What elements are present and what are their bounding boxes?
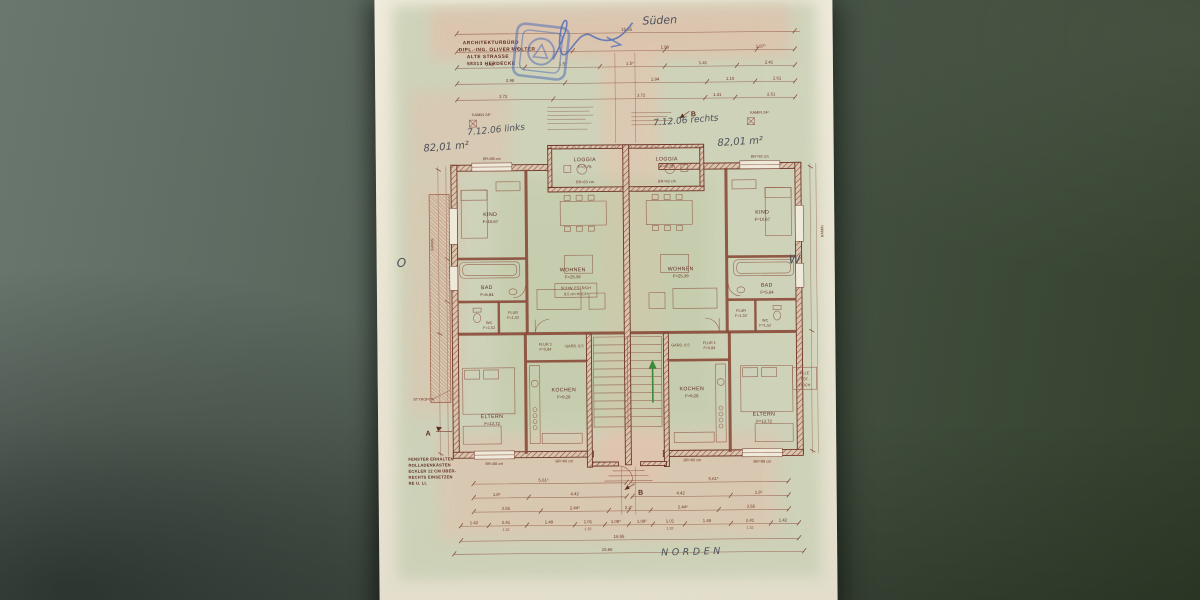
photo-of-floor-plan: 15.55 3.98 1.98 1.87⁵ 2.58 1.5⁵ 1.5⁵ 1.4… — [0, 0, 1200, 600]
architect-line4: 58313 HERDECKE — [467, 61, 516, 67]
side-note-line1: ALLE — [800, 371, 810, 375]
dim-label: 1.42 — [779, 517, 788, 522]
br63-loggia-left: BR=63 cm — [576, 180, 594, 184]
dim-label: 4.42 — [676, 490, 685, 495]
architect-line2: DIPL.-ING. OLIVER WOLTER — [459, 47, 536, 54]
room-kochen-right: KOCHEN — [679, 386, 704, 392]
dim-label: 1.8⁵ — [493, 492, 501, 497]
section-a-label: A — [426, 431, 431, 438]
dim-label: 2.41 — [765, 60, 774, 65]
room-kochen-left-area: F=9,28 — [557, 394, 571, 399]
dim-label: 3.55 — [747, 504, 756, 509]
handwritten-compass-east: O — [397, 256, 407, 270]
room-wohnen-right: WOHNEN — [668, 266, 694, 272]
dim-label: 2.61 — [773, 75, 782, 80]
dim-label: 3.72 — [637, 93, 646, 98]
dim-label: 2.41 — [746, 518, 755, 523]
window — [450, 266, 458, 290]
room-kind-left-area: F=10,67 — [483, 219, 499, 224]
hatched-existing-wall — [429, 194, 451, 402]
dim-sublabel: 1.32 — [746, 526, 753, 530]
side-note-line2: EST. — [801, 377, 809, 381]
side-note-line3: HOCH — [799, 383, 810, 387]
dim-sublabel: 1.32 — [502, 528, 509, 532]
dim-label: 2.44⁵ — [570, 505, 580, 510]
room-kind-right-area: F=10,67 — [755, 217, 771, 222]
room-loggia-left-area: F=3,75 — [578, 164, 592, 169]
room-kochen-left: KOCHEN — [551, 387, 576, 393]
dim-label: 1.49 — [703, 518, 712, 523]
br66-bottom-left: BR=66 cm — [555, 459, 573, 463]
room-bad-right-area: F=5,64 — [760, 290, 774, 295]
room-flur1-right-area: F=5,84 — [703, 346, 715, 350]
dim-sublabel: 1.32 — [584, 527, 591, 531]
schwelle-note-line1: SCHW. ESTRICH — [561, 286, 591, 290]
dim-label: 1.87⁵ — [756, 44, 766, 49]
dim-label: 2.61 — [767, 92, 776, 97]
br92-top-right: BR=92 cm — [751, 155, 769, 159]
window — [796, 263, 804, 287]
room-flur1-left: FLUR 1 — [539, 342, 552, 346]
dim-bottom-total1: 16.55 — [614, 534, 625, 539]
dim-label: 2.2⁵ — [625, 505, 633, 510]
room-flur-right-area: F=1,52 — [735, 314, 747, 318]
dim-label: 1.41 — [713, 92, 722, 97]
dim-sublabel: 1.32 — [666, 526, 673, 530]
kamin-side-label-right: KAMIN — [820, 225, 824, 237]
room-flur1-left-area: F=5,84 — [539, 347, 551, 351]
room-eltern-right-area: F=13,72 — [756, 419, 772, 424]
room-flur-left: FLUR — [508, 311, 518, 315]
dim-label: 2.41 — [502, 520, 511, 525]
schwelle-note-line2: 8,5 cm HOCH — [564, 292, 588, 296]
dim-label: 2.98 — [506, 78, 515, 83]
dim-label: 4.42 — [570, 491, 579, 496]
dim-label: 1.5⁵ — [626, 61, 634, 66]
handwritten-sueden: Süden — [642, 13, 677, 28]
br88-top-left: BR=88 cm — [483, 157, 501, 161]
dim-label: 1.8⁵ — [755, 490, 763, 495]
window-note-line5: RE U. LI. — [409, 481, 428, 486]
room-kind-right: KIND — [755, 210, 769, 216]
dim-label: 1.94 — [651, 77, 660, 82]
window — [795, 205, 803, 241]
room-loggia-left: LOGGIA — [574, 157, 596, 163]
kamin24-right: KAMIN 24² — [750, 111, 769, 115]
dim-label: 2.44⁵ — [678, 504, 688, 509]
plan-paper-sheet: 15.55 3.98 1.98 1.87⁵ 2.58 1.5⁵ 1.5⁵ 1.4… — [374, 0, 837, 600]
br63-loggia-right: BR=63 cm — [658, 179, 676, 183]
styropor-label: STYROPOR — [413, 397, 435, 401]
window-note-line4: RECHTS EINSETZEN — [409, 474, 453, 479]
handwritten-compass-west: W — [789, 252, 802, 266]
room-flur-right: FLUR — [736, 309, 746, 313]
window-note-line2: ROLLADENKÄSTEN — [408, 462, 450, 467]
room-bad-left: BAD — [481, 285, 493, 291]
room-wohnen-right-area: F=25,39 — [673, 273, 689, 278]
dim-label: 1.08⁵ — [611, 519, 621, 524]
room-eltern-left-area: F=13,72 — [484, 421, 500, 426]
dim-label: 3.72 — [499, 94, 508, 99]
room-wohnen-left-area: F=25,39 — [565, 274, 581, 279]
kamin24-left: KAMIN 24² — [472, 113, 491, 117]
dim-label: 1.41 — [699, 60, 708, 65]
gard-left: GARD. 0,5 — [565, 344, 583, 348]
dim-label: 1.42 — [470, 520, 479, 525]
section-b-label: B — [638, 490, 643, 497]
room-wc-left: WC — [486, 321, 493, 325]
dim-label: 1.01 — [584, 519, 593, 524]
room-flur-left-area: F=1,52 — [507, 316, 519, 320]
dim-label: 5.61⁵ — [538, 478, 548, 483]
dim-label: 1.98 — [661, 44, 670, 49]
dim-label: 5.61⁵ — [708, 476, 718, 481]
gard-right: GARD. 0,5 — [671, 343, 689, 347]
dim-bottom-total2: 15.66 — [602, 547, 613, 552]
window-note-line3: ECKLER 12 CM ÜBER- — [408, 468, 456, 473]
handwritten-norden: NORDEN — [661, 546, 724, 559]
room-eltern-left: ELTERN — [481, 414, 504, 420]
br88-bottom-right: BR=88 cm — [753, 460, 771, 464]
dim-label: 1.49 — [545, 519, 554, 524]
room-wohnen-left: WOHNEN — [560, 267, 586, 273]
dim-label: 1.01 — [666, 518, 675, 523]
dim-label: 3.55 — [502, 506, 511, 511]
window — [449, 208, 457, 244]
dim-label: 1.10 — [726, 76, 735, 81]
room-wc-right-area: F=1,52 — [759, 324, 771, 328]
room-loggia-right: LOGGIA — [656, 156, 678, 162]
br88-bottom-left: BR=88 cm — [485, 462, 503, 466]
room-wc-right: WC — [762, 319, 769, 323]
room-kind-left: KIND — [483, 212, 497, 218]
floor-plan-drawing: 15.55 3.98 1.98 1.87⁵ 2.58 1.5⁵ 1.5⁵ 1.4… — [374, 0, 837, 600]
dim-label: 1.08⁵ — [637, 519, 647, 524]
room-loggia-right-area: F=3,75 — [660, 163, 674, 168]
br66-bottom-right: BR=66 cm — [683, 458, 701, 462]
room-wc-left-area: F=1,52 — [483, 326, 495, 330]
room-kochen-right-area: F=9,28 — [685, 393, 699, 398]
room-bad-left-area: F=5,64 — [480, 292, 494, 297]
architect-line3: ALTE STRASSE — [467, 54, 510, 60]
window-note-line1: FENSTER ERHALTEN — [408, 456, 453, 461]
room-eltern-right: ELTERN — [753, 412, 776, 418]
room-bad-right: BAD — [761, 283, 773, 289]
room-flur1-right: FLUR 1 — [703, 341, 716, 345]
